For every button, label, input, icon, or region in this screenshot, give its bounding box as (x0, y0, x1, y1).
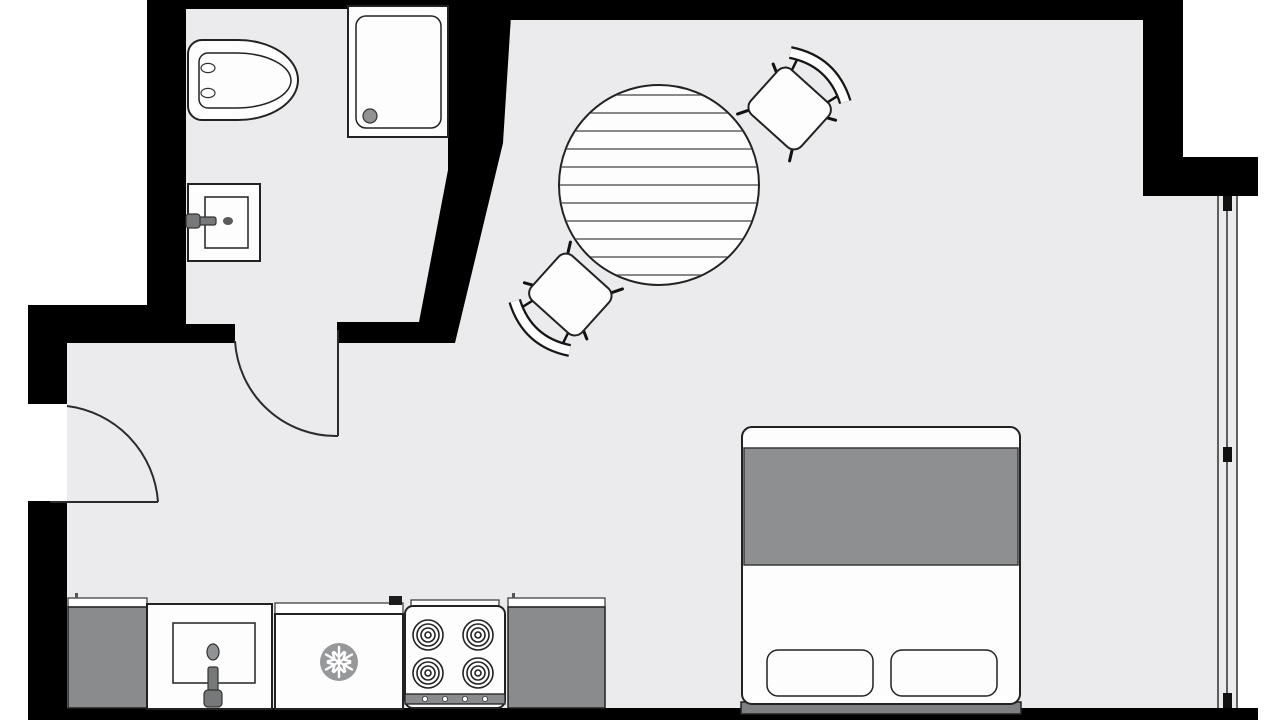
shower (348, 6, 448, 137)
counter-left-lip (68, 598, 147, 607)
toilet-hinge-right (201, 88, 215, 97)
toilet-hinge-left (201, 63, 215, 72)
bathroom-sink-drain (223, 217, 233, 225)
kitchen-sink-drain (207, 644, 219, 660)
counter-left-tick (75, 593, 78, 598)
wall-bathroom-bottom-left (186, 324, 235, 343)
dining-table (555, 85, 763, 285)
window-mullion-bottom (1223, 693, 1232, 708)
window-mullion-top (1223, 196, 1232, 211)
bathroom-sink (186, 184, 260, 261)
stove (405, 606, 505, 708)
toilet (188, 40, 298, 120)
bed-pillow-right (891, 650, 997, 696)
window-mullion-middle (1223, 447, 1232, 462)
bed-blanket (744, 448, 1018, 565)
floor-plan-page (0, 0, 1280, 720)
wall-left-lower (28, 500, 67, 720)
refrigerator-hinge-tick (389, 596, 402, 605)
wall-left-upper (28, 305, 67, 406)
refrigerator-lid (275, 603, 403, 614)
bed-pillow-left (767, 650, 873, 696)
wall-right-stub (1143, 157, 1258, 196)
wall-top-main (448, 0, 1183, 20)
entry-opening (24, 404, 67, 501)
counter-right-tick (512, 593, 515, 598)
kitchenette (68, 593, 605, 709)
stove-control-strip (405, 694, 505, 704)
bathroom-sink-faucet-handle (186, 214, 200, 228)
kitchen-faucet-handle (204, 690, 222, 707)
wall-bathroom-left (147, 0, 186, 343)
shower-drain (363, 109, 377, 123)
floor-plan (0, 0, 1280, 720)
counter-right (508, 607, 605, 708)
counter-right-lip (508, 598, 605, 607)
counter-left (68, 607, 147, 708)
bed (741, 427, 1021, 714)
